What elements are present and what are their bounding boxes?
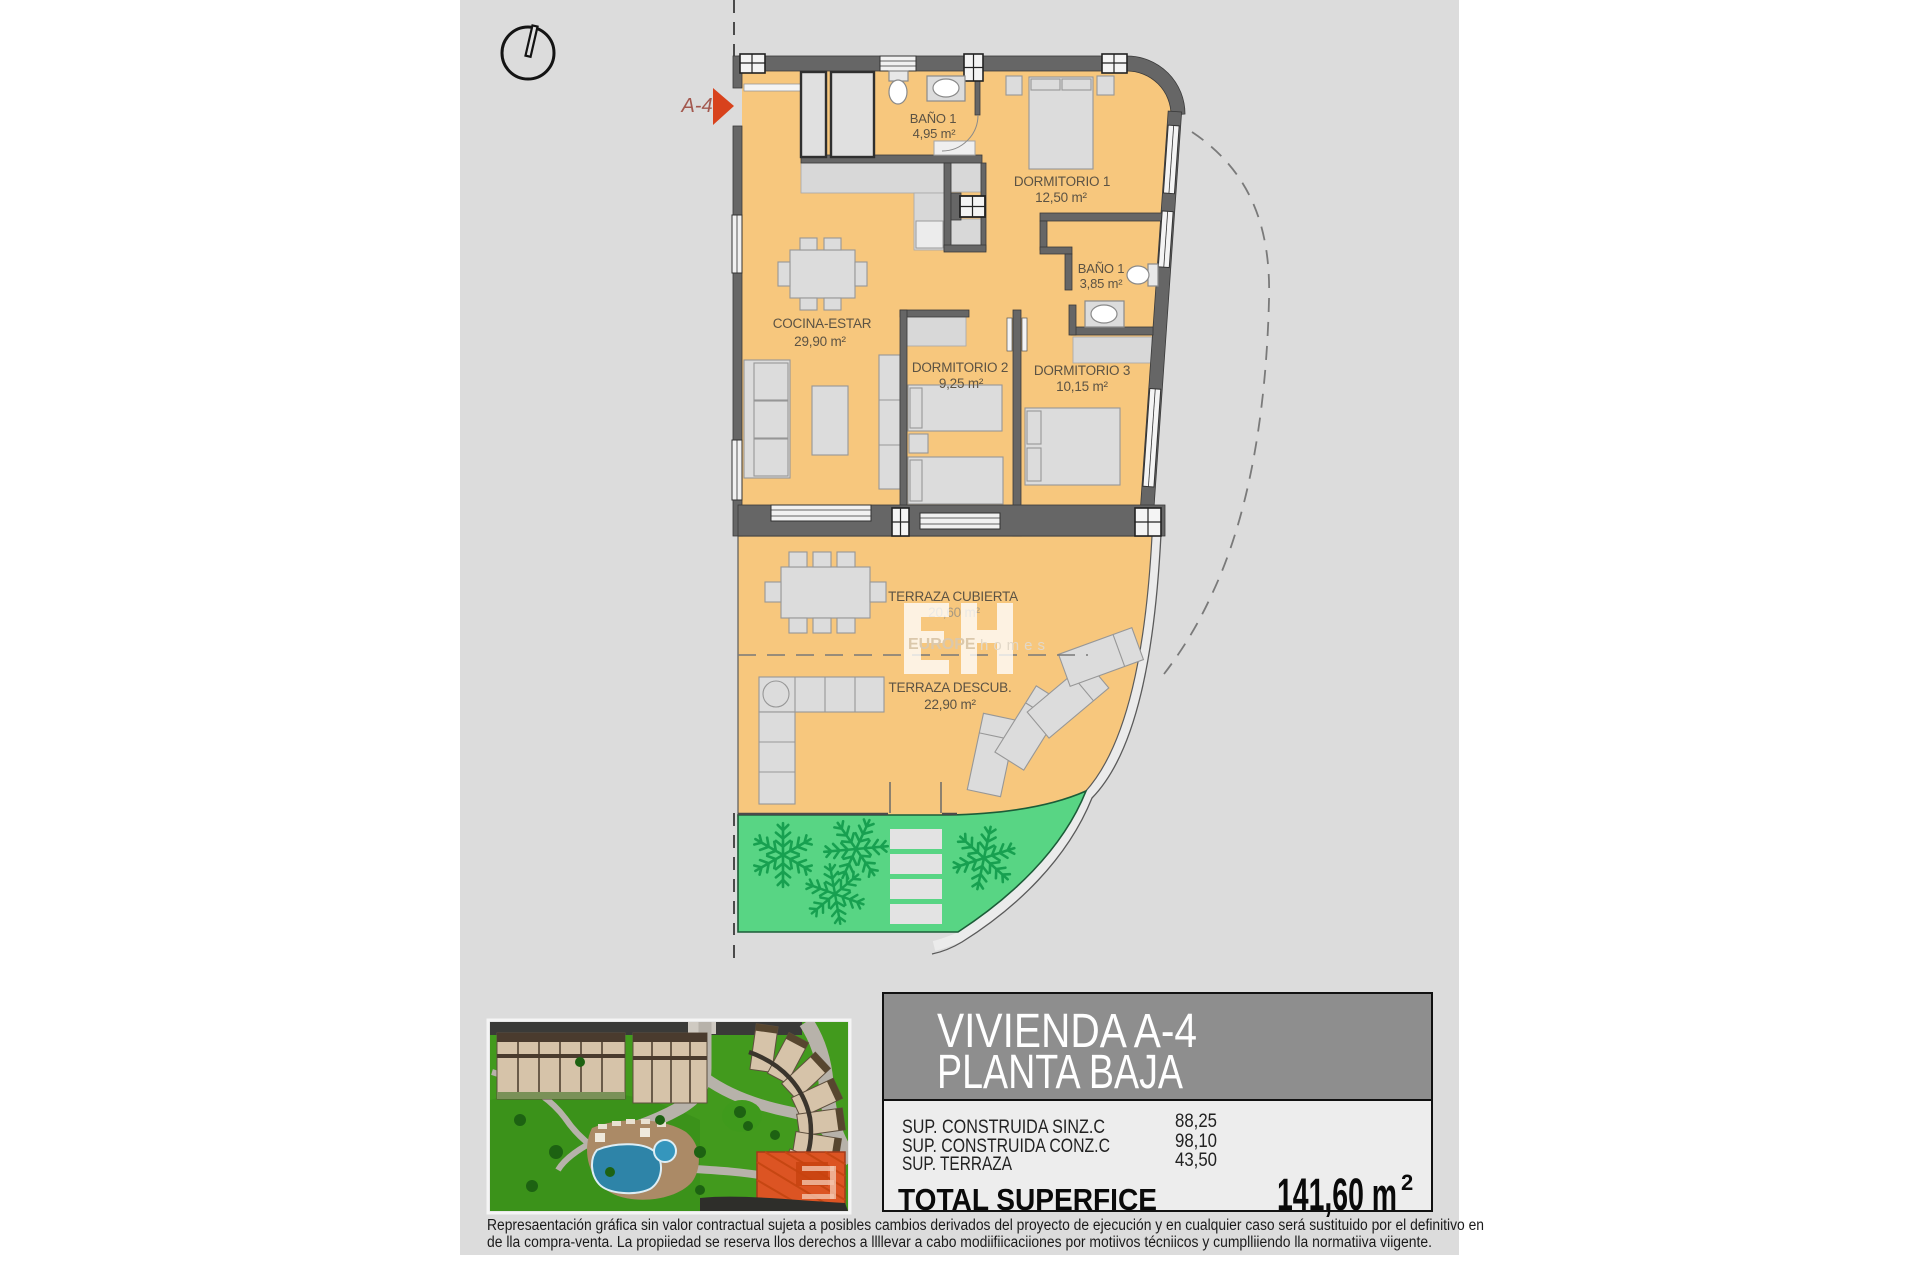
- svg-text:98,10: 98,10: [1175, 1131, 1217, 1152]
- svg-text:A-4: A-4: [680, 95, 712, 117]
- svg-text:10,15 m²: 10,15 m²: [1056, 379, 1108, 394]
- svg-text:3,85 m²: 3,85 m²: [1080, 276, 1124, 291]
- svg-text:141,60 m: 141,60 m: [1277, 1169, 1397, 1220]
- svg-text:EUROPE: EUROPE: [908, 636, 976, 653]
- svg-text:4,95 m²: 4,95 m²: [913, 126, 957, 141]
- svg-text:DORMITORIO 3: DORMITORIO 3: [1034, 363, 1130, 378]
- svg-text:Represaentación gráfica sin va: Represaentación gráfica sin valor contra…: [487, 1217, 1484, 1234]
- svg-text:29,90 m²: 29,90 m²: [794, 334, 846, 349]
- svg-text:DORMITORIO 2: DORMITORIO 2: [912, 360, 1008, 375]
- svg-text:2: 2: [1401, 1170, 1413, 1195]
- svg-text:PLANTA BAJA: PLANTA BAJA: [937, 1046, 1183, 1099]
- svg-text:22,90 m²: 22,90 m²: [924, 697, 976, 712]
- svg-text:12,50 m²: 12,50 m²: [1035, 190, 1087, 205]
- svg-text:DORMITORIO 1: DORMITORIO 1: [1014, 174, 1110, 189]
- svg-text:de lla compra-venta. La propii: de lla compra-venta. La propiiedad se re…: [487, 1234, 1432, 1251]
- svg-text:TERRAZA DESCUB.: TERRAZA DESCUB.: [888, 680, 1011, 695]
- svg-text:SUP. TERRAZA: SUP. TERRAZA: [902, 1154, 1012, 1175]
- svg-text:TOTAL SUPERFICE: TOTAL SUPERFICE: [898, 1182, 1157, 1217]
- svg-text:BAÑO 1: BAÑO 1: [910, 111, 956, 126]
- svg-text:43,50: 43,50: [1175, 1150, 1217, 1171]
- svg-text:TERRAZA CUBIERTA: TERRAZA CUBIERTA: [888, 589, 1018, 604]
- svg-text:homes: homes: [980, 637, 1050, 654]
- svg-text:9,25 m²: 9,25 m²: [939, 376, 984, 391]
- svg-text:SUP. CONSTRUIDA SINZ.C: SUP. CONSTRUIDA SINZ.C: [902, 1117, 1105, 1138]
- svg-text:COCINA-ESTAR: COCINA-ESTAR: [773, 316, 872, 331]
- svg-text:88,25: 88,25: [1175, 1111, 1217, 1132]
- svg-text:BAÑO 1: BAÑO 1: [1078, 261, 1124, 276]
